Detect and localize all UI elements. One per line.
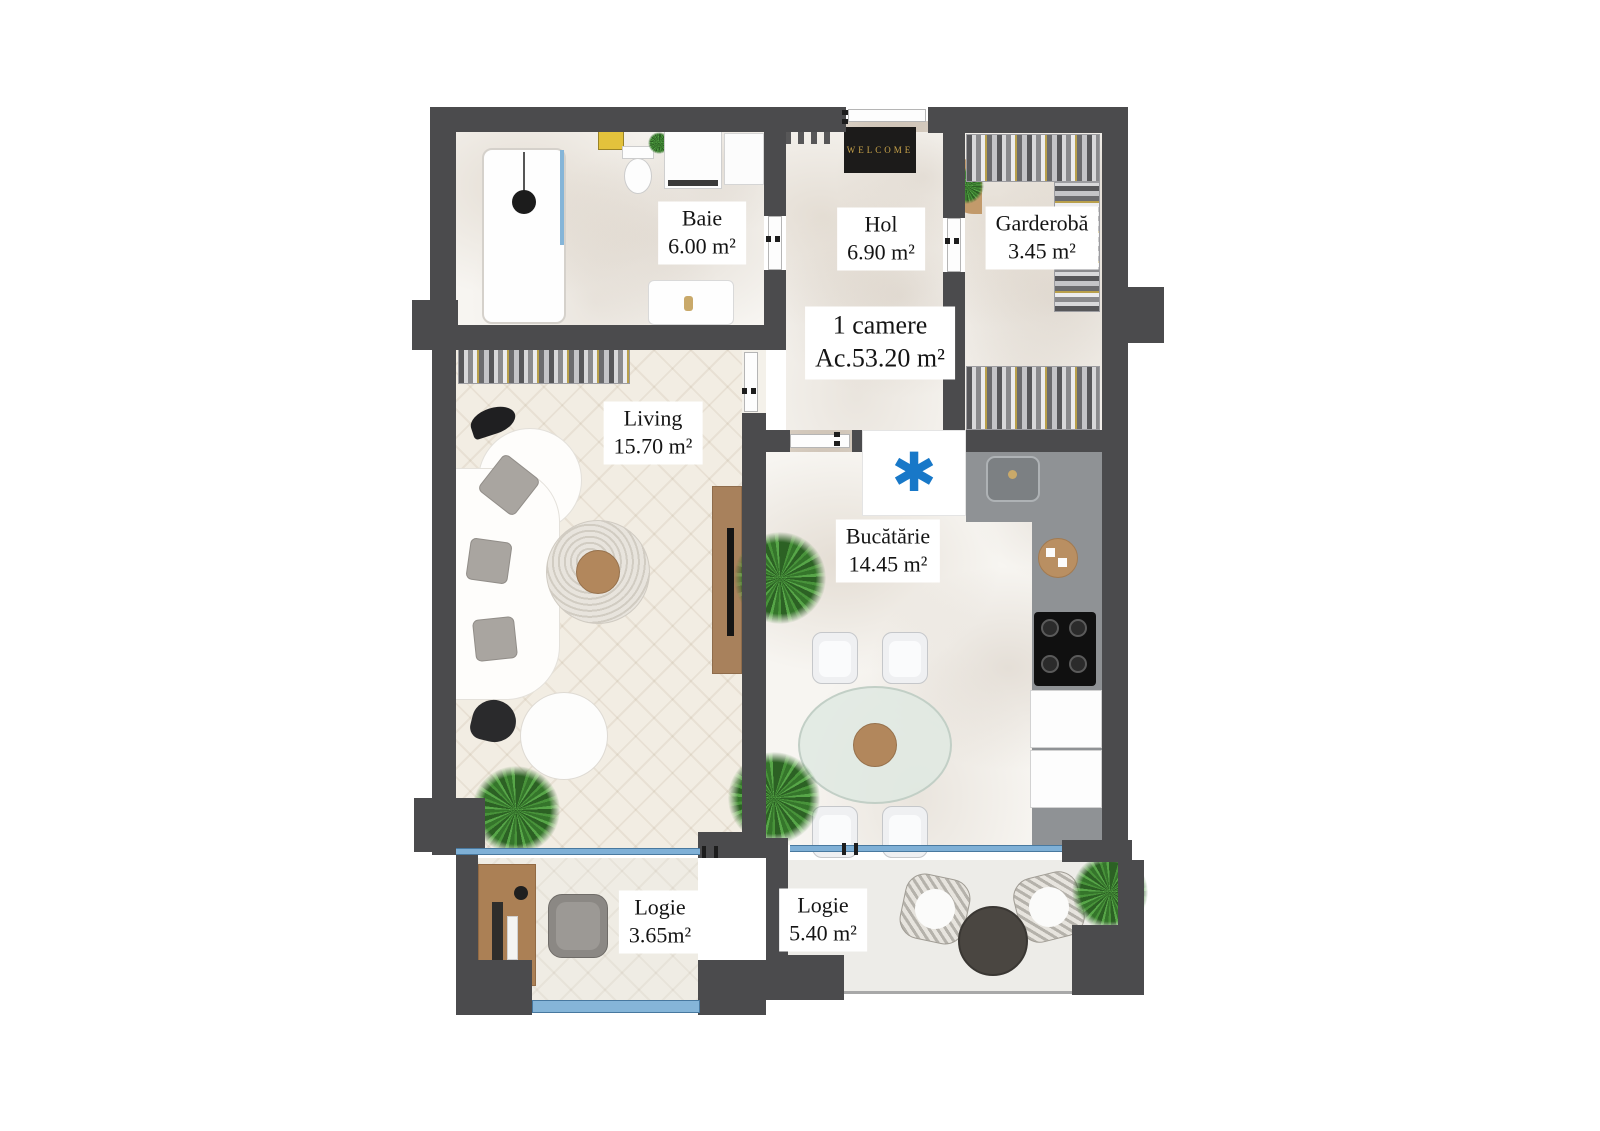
bar-table-item <box>1058 558 1067 567</box>
window-living <box>456 848 700 855</box>
unit-label: 1 camere Ac.53.20 m² <box>805 307 955 380</box>
tv <box>727 528 734 636</box>
door-hinge <box>945 238 950 244</box>
room-name: Hol <box>847 211 915 239</box>
shower-glass <box>560 150 564 245</box>
bar-table-item <box>1046 548 1055 557</box>
kitchen-cabinet <box>1030 750 1102 808</box>
door-hinge <box>834 432 840 437</box>
room-label-logie-1: Logie 3.65m² <box>619 891 701 954</box>
clothes-rack-top <box>966 134 1100 182</box>
ac-marker: ✱ <box>862 430 966 516</box>
wall <box>1102 430 1128 862</box>
room-area: 14.45 m² <box>846 550 930 578</box>
room-label-logie-2: Logie 5.40 m² <box>779 889 867 952</box>
wall <box>943 132 965 218</box>
room-area: 6.90 m² <box>847 238 915 266</box>
door-living <box>744 352 758 412</box>
wall-pillar <box>414 798 485 852</box>
wall <box>1102 132 1128 432</box>
dining-chair <box>882 632 928 684</box>
laundry-cabinet <box>724 133 764 185</box>
monitor <box>492 902 503 968</box>
door-garderoba <box>947 218 961 272</box>
dining-chair <box>812 632 858 684</box>
balcony-edge <box>844 991 1072 994</box>
room-name: Logie <box>789 892 857 920</box>
door-hinge <box>751 388 756 394</box>
shower-head <box>512 190 536 214</box>
room-name: Baie <box>668 205 736 233</box>
bath-scale <box>598 129 624 150</box>
wall-pillar <box>1102 287 1164 343</box>
side-table <box>520 692 608 780</box>
ac-asterisk-icon: ✱ <box>891 446 936 500</box>
room-area: 3.45 m² <box>996 237 1089 265</box>
door-hinge <box>834 441 840 446</box>
floor-plan: WELCOME <box>0 0 1600 1131</box>
slider-mark <box>702 846 706 858</box>
floor-hol <box>786 132 943 430</box>
slider-mark <box>854 843 858 855</box>
unit-title: 1 camere <box>815 310 945 343</box>
burner <box>1041 655 1059 673</box>
window-kitchen <box>790 845 1062 852</box>
welcome-mat: WELCOME <box>844 127 916 173</box>
desk-lamp <box>514 886 528 900</box>
wall <box>432 350 456 855</box>
room-label-hol: Hol 6.90 m² <box>837 208 925 271</box>
room-name: Logie <box>629 894 691 922</box>
wall <box>764 107 846 132</box>
wall <box>698 832 766 858</box>
wall <box>928 107 1128 133</box>
coffee-table-center <box>576 550 620 594</box>
wall <box>742 413 766 852</box>
wall <box>430 107 764 132</box>
burner <box>1041 619 1059 637</box>
keyboard <box>507 916 518 960</box>
kitchen-cabinet <box>1030 690 1102 748</box>
room-area: 5.40 m² <box>789 919 857 947</box>
welcome-mat-text: WELCOME <box>847 145 914 155</box>
plant-living <box>472 766 560 854</box>
kitchen-sink <box>986 456 1040 502</box>
dining-table-center <box>853 723 897 767</box>
armchair-seat <box>556 902 600 950</box>
toilet <box>624 158 652 194</box>
door-kitchen <box>790 434 850 448</box>
room-name: Garderobă <box>996 210 1089 238</box>
wall <box>1072 925 1144 995</box>
door-hinge <box>842 110 848 115</box>
room-area: 15.70 m² <box>614 432 693 460</box>
wall <box>1062 840 1132 862</box>
vanity-faucet <box>684 296 693 311</box>
room-label-baie: Baie 6.00 m² <box>658 202 746 265</box>
patio-table <box>958 906 1028 976</box>
slider-mark <box>714 846 718 858</box>
door-hinge <box>766 236 771 242</box>
wall <box>430 325 764 350</box>
door-hinge <box>954 238 959 244</box>
room-label-living: Living 15.70 m² <box>604 402 703 465</box>
wall <box>456 960 532 1015</box>
entrance-door <box>848 109 926 122</box>
burner <box>1069 655 1087 673</box>
washing-machine-vent <box>668 180 718 186</box>
room-name: Living <box>614 405 693 433</box>
door-hinge <box>742 388 747 394</box>
room-label-garderoba: Garderobă 3.45 m² <box>986 207 1099 270</box>
door-baie <box>768 216 782 270</box>
wall <box>698 960 766 1015</box>
wall <box>764 130 786 216</box>
room-area: 3.65m² <box>629 921 691 949</box>
room-name: Bucătărie <box>846 523 930 551</box>
wall <box>766 955 844 1000</box>
wall <box>766 430 790 452</box>
room-area: 6.00 m² <box>668 232 736 260</box>
room-label-bucatarie: Bucătărie 14.45 m² <box>836 520 940 583</box>
sink-faucet <box>1008 470 1017 479</box>
burner <box>1069 619 1087 637</box>
door-hinge <box>842 119 848 124</box>
wall <box>764 270 786 350</box>
unit-area: Ac.53.20 m² <box>815 342 945 375</box>
window-logie-1 <box>532 1000 700 1013</box>
sofa-cushion <box>465 537 512 584</box>
sofa-cushion <box>472 616 518 662</box>
door-hinge <box>775 236 780 242</box>
slider-mark <box>842 843 846 855</box>
clothes-rack-bottom <box>966 366 1100 430</box>
